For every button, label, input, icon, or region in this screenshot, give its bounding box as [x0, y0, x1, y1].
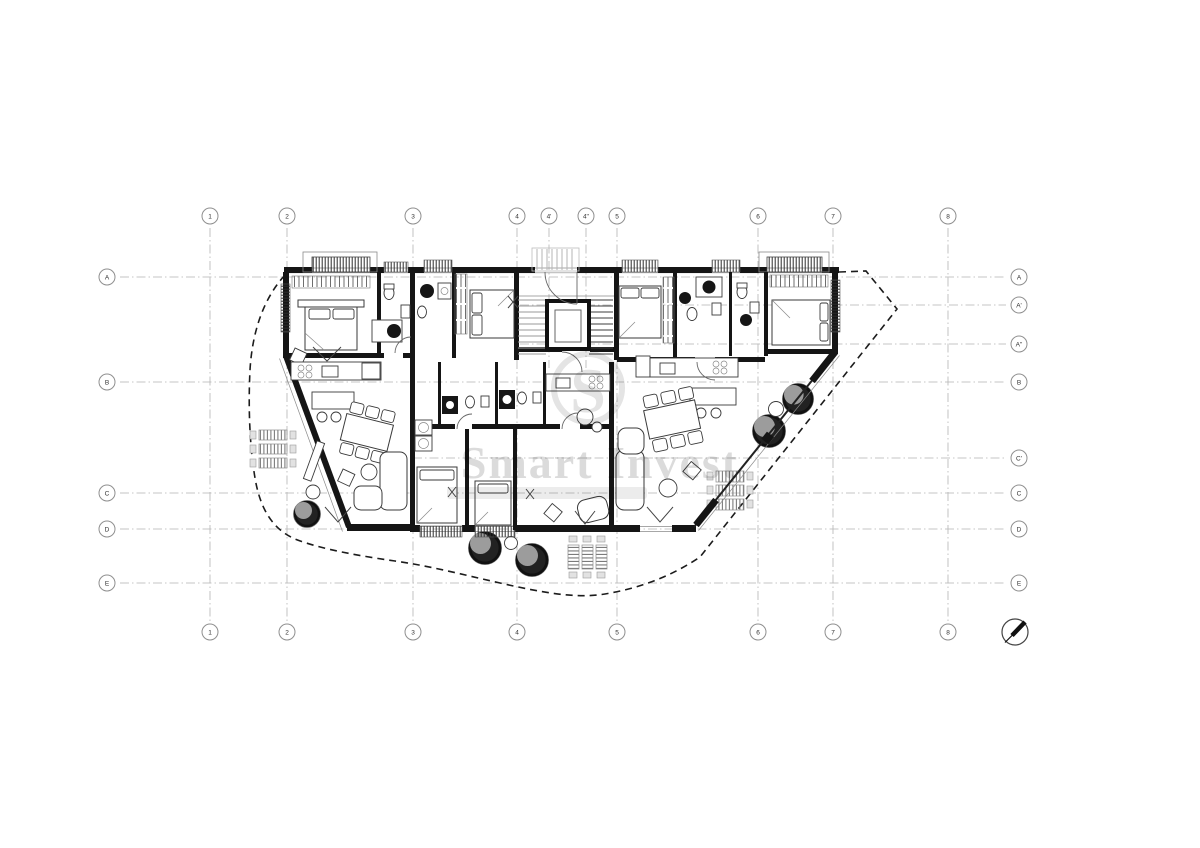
grid-bubble-label: 2 — [285, 629, 289, 636]
sideboard — [303, 441, 324, 481]
shrub — [769, 402, 784, 417]
stair-flight-right — [589, 300, 613, 354]
bathroom-mid-1 — [442, 396, 489, 414]
grid-bubble-label: 3 — [411, 629, 415, 636]
north-arrow-icon — [1002, 619, 1028, 645]
grid-bubble-label: 2 — [285, 213, 289, 220]
grid-bubble-label: C — [105, 490, 110, 497]
grid-bubble-label: A — [1017, 274, 1022, 281]
grid-bubble-label: E — [105, 580, 110, 587]
washbasin — [533, 392, 541, 403]
bed — [619, 286, 661, 338]
sink — [322, 366, 338, 377]
stair-core — [518, 248, 614, 354]
tree — [516, 544, 549, 577]
toilet — [687, 308, 697, 321]
washbasin — [712, 303, 721, 315]
balcony-grille — [312, 257, 370, 272]
toilet — [466, 396, 475, 408]
grid-bubble-label: B — [1017, 379, 1021, 386]
wardrobe — [455, 274, 467, 334]
grid-bubble-label: 4 — [515, 629, 519, 636]
bathroom-2 — [418, 283, 452, 318]
grid-bubble-label: 4' — [547, 213, 552, 220]
wardrobe — [292, 276, 370, 288]
grid-bubble-label: A' — [1016, 302, 1022, 309]
bed — [772, 300, 830, 345]
bedroom-3 — [455, 274, 518, 338]
watermark-subtext-blur — [447, 487, 647, 499]
washbasin — [750, 302, 759, 313]
armchair — [576, 495, 611, 525]
balcony-grille — [767, 257, 822, 272]
sofa — [354, 452, 407, 510]
wardrobe — [770, 275, 828, 287]
bedroom-5 — [770, 275, 830, 345]
washer-stack — [415, 420, 432, 451]
bathroom-mid-2 — [499, 390, 541, 409]
fridge — [362, 363, 380, 379]
grid-bubble-label: D — [1017, 526, 1022, 533]
grid-bubble-label: 8 — [946, 629, 950, 636]
bed — [298, 300, 364, 350]
grid-bubble-label: 4 — [515, 213, 519, 220]
grid-bubble-label: E — [1017, 580, 1022, 587]
washbasin — [401, 305, 410, 318]
watermark-brand: Smart Invest — [461, 437, 739, 488]
grid-bubble-label: 5 — [615, 213, 619, 220]
grid-bubble-label: B — [105, 379, 109, 386]
planter-bottom — [568, 536, 607, 578]
grid-bubble-label: 1 — [208, 213, 212, 220]
planter-left — [250, 430, 296, 468]
grid-bubble-label: 7 — [831, 629, 835, 636]
bedroom-4 — [619, 277, 674, 343]
stool — [544, 504, 562, 522]
grid-bubble-label: 6 — [756, 213, 760, 220]
kitchen-counter — [636, 356, 738, 377]
grid-bubble-label: A'' — [1016, 341, 1023, 348]
door-v-glyph — [647, 507, 673, 522]
stair-flight-left — [518, 300, 546, 354]
washbasin — [481, 396, 489, 407]
stool — [338, 469, 355, 486]
grid-bubble-label: C' — [1016, 455, 1022, 462]
sink — [660, 363, 675, 374]
toilet — [518, 392, 527, 404]
shower — [420, 284, 434, 298]
shower — [387, 324, 401, 338]
kitchen-counter — [291, 362, 381, 380]
shower — [703, 281, 716, 294]
elevator-car — [555, 310, 581, 342]
toilet — [418, 306, 427, 318]
grid-bubble-label: 1 — [208, 629, 212, 636]
watermark-logo: S — [570, 355, 606, 426]
grid-bubble-label: A — [105, 274, 110, 281]
floor-plan-image: 112233444'4''55667788AAA'A''BBC'CCDDEE — [0, 0, 1200, 848]
coffee-table — [361, 464, 377, 480]
floor-plan-page: 112233444'4''55667788AAA'A''BBC'CCDDEE — [0, 0, 1200, 848]
grid-bubble-label: 6 — [756, 629, 760, 636]
shrub — [306, 485, 320, 499]
tree — [294, 501, 321, 528]
grid-bubble-label: D — [105, 526, 110, 533]
grid-bubble-label: 7 — [831, 213, 835, 220]
bedroom-top-left — [290, 276, 370, 365]
wardrobe — [663, 277, 674, 343]
grid-bubble-label: C — [1017, 490, 1022, 497]
grid-bubble-label: 8 — [946, 213, 950, 220]
shrub — [505, 537, 518, 550]
grid-bubble-label: 5 — [615, 629, 619, 636]
bed — [470, 290, 514, 338]
grid-bubble-label: 4'' — [583, 213, 589, 220]
wc-room — [737, 283, 759, 326]
bathroom-3 — [679, 277, 722, 321]
grid-bubble-label: 3 — [411, 213, 415, 220]
